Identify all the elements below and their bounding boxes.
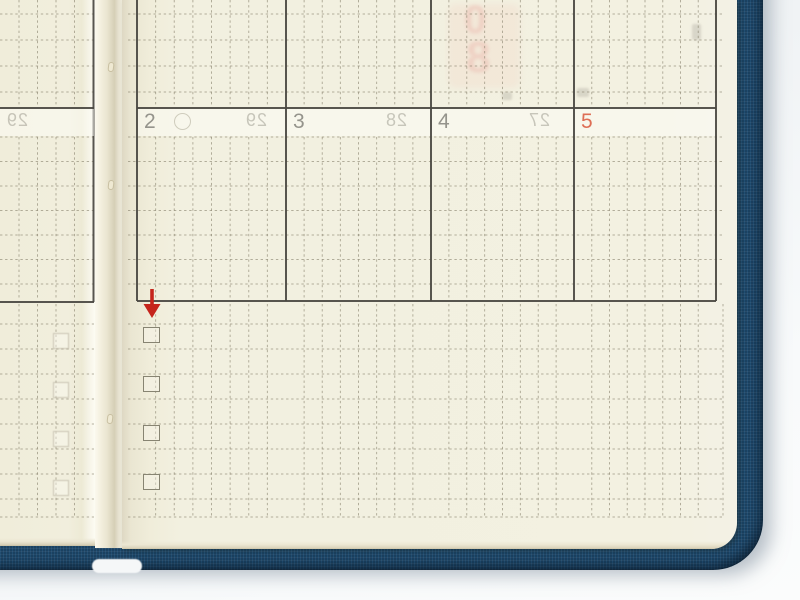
binding-stitch bbox=[107, 180, 114, 191]
showthrough-date: 27 bbox=[528, 111, 550, 129]
left-page: 29 bbox=[0, 0, 95, 546]
checklist-checkbox bbox=[143, 327, 160, 343]
showthrough-date: 28 bbox=[385, 111, 407, 129]
date-cell-label: 2 bbox=[144, 111, 156, 132]
date-cell-label: 3 bbox=[293, 111, 305, 132]
date-cell-label-holiday: 5 bbox=[581, 111, 593, 132]
date-cell-label: 4 bbox=[438, 111, 450, 132]
cover-bottom-notch bbox=[92, 559, 142, 573]
showthrough-checkbox bbox=[53, 431, 69, 447]
left-page-grid bbox=[0, 0, 95, 546]
checklist-checkbox bbox=[143, 474, 160, 490]
showthrough-checkbox bbox=[53, 382, 69, 398]
checklist-checkbox bbox=[143, 376, 160, 392]
showthrough-date: 29 bbox=[245, 111, 267, 129]
calendar-grid bbox=[122, 0, 737, 549]
red-down-arrow-icon bbox=[139, 287, 165, 321]
binding-gutter bbox=[95, 0, 122, 548]
showthrough-checkbox bbox=[53, 333, 69, 349]
moon-phase-icon bbox=[174, 113, 191, 130]
binding-stitch bbox=[107, 62, 114, 73]
showthrough-checkbox bbox=[53, 480, 69, 496]
planner-photo-scene: 29 0 8 2 3 4 5 29 28 27 bbox=[0, 0, 800, 600]
showthrough-date: 29 bbox=[6, 111, 28, 129]
checklist-checkbox bbox=[143, 425, 160, 441]
binding-stitch bbox=[106, 414, 113, 425]
right-page: 0 8 2 3 4 5 29 28 27 bbox=[122, 0, 737, 549]
